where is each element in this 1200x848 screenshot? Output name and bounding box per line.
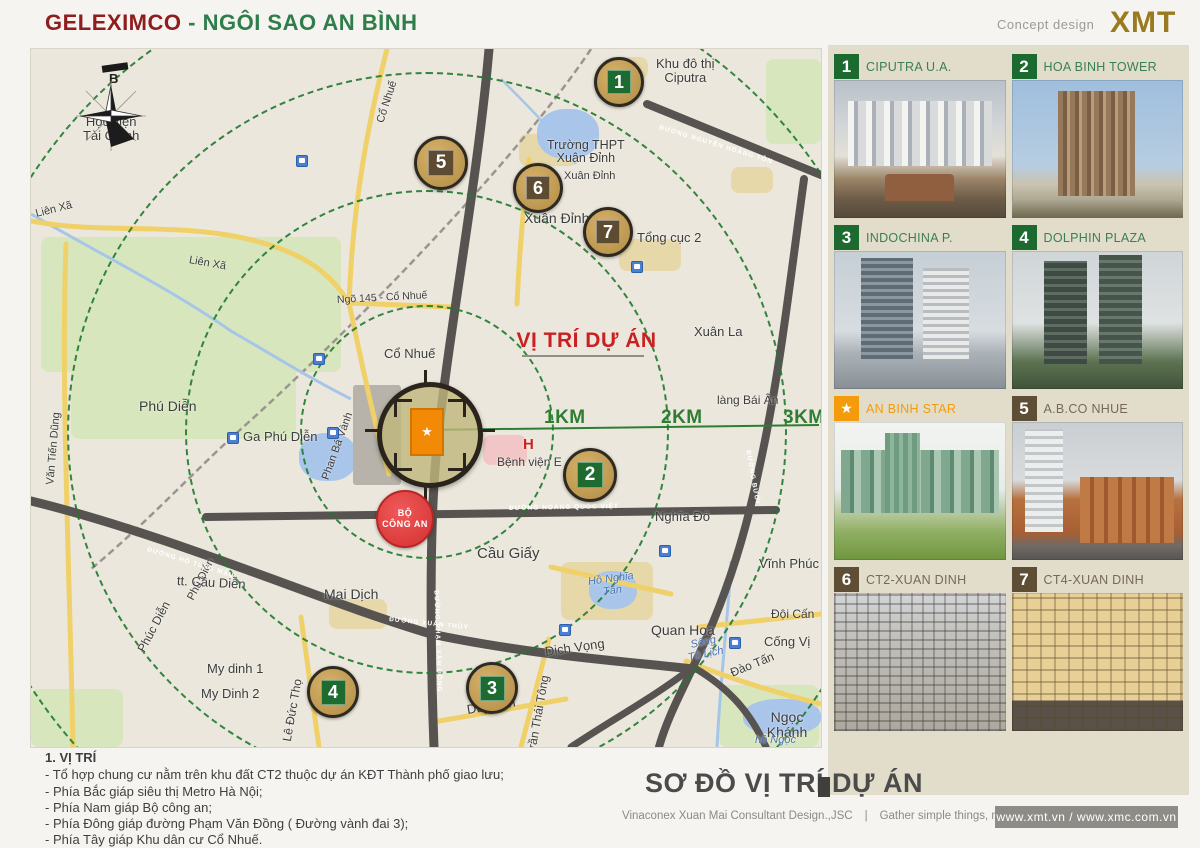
legend-number-box: 6 <box>834 567 859 592</box>
legend-label: CT4-XUAN DINH <box>1044 573 1144 587</box>
crosshair-tick <box>365 429 378 432</box>
location-map: B VỊ TRÍ DỰ ÁN <box>30 48 822 748</box>
legend-item-3: 3INDOCHINA P. <box>834 224 1006 392</box>
map-label: làng Bái Ân <box>717 394 778 407</box>
legend-label-row: 4DOLPHIN PLAZA <box>1012 224 1184 251</box>
legend-item-6: 6CT2-XUAN DINH <box>834 566 1006 734</box>
bus-stop-icon <box>631 261 643 273</box>
buildings-legend-panel: 1CIPUTRA U.A.2HOA BINH TOWER3INDOCHINA P… <box>828 45 1189 795</box>
location-note-line: - Phía Bắc giáp siêu thị Metro Hà Nội; <box>45 784 605 800</box>
legend-item-5: 5A.B.CO NHUE <box>1012 395 1184 563</box>
map-label: Xuân Đỉnh <box>524 211 589 226</box>
location-note-line: - Tổ hợp chung cư nằm trên khu đất CT2 t… <box>45 767 605 783</box>
legend-number-box: 3 <box>834 225 859 250</box>
police-ministry-marker: BỘ CÔNG AN <box>376 490 434 548</box>
map-label: Mai Dịch <box>324 587 378 602</box>
legend-label-row: 1CIPUTRA U.A. <box>834 53 1006 80</box>
concept-design-note: Concept design <box>997 17 1094 32</box>
marker-number: 2 <box>577 462 603 488</box>
legend-label-row: 2HOA BINH TOWER <box>1012 53 1184 80</box>
legend-label: AN BINH STAR <box>866 402 956 416</box>
legend-item-7: 7CT4-XUAN DINH <box>1012 566 1184 734</box>
building-photo-indochina <box>834 251 1006 389</box>
legend-label: A.B.CO NHUE <box>1044 402 1129 416</box>
title-separator: - <box>188 10 196 35</box>
bus-stop-icon <box>227 432 239 444</box>
map-label: Cổ Nhuế <box>384 347 435 361</box>
page-tab <box>818 777 830 797</box>
location-notes: 1. VỊ TRÍ - Tổ hợp chung cư nằm trên khu… <box>45 750 605 848</box>
bus-stop-icon <box>327 427 339 439</box>
map-marker-1: 1 <box>594 57 644 107</box>
bus-stop-icon <box>313 353 325 365</box>
building-photo-dolphin <box>1012 251 1184 389</box>
map-marker-2: 2 <box>563 448 617 502</box>
corner-bracket <box>448 453 466 471</box>
star-icon: ★ <box>834 396 859 421</box>
map-label: Cống Vị <box>764 635 810 649</box>
legend-number-box: 5 <box>1012 396 1037 421</box>
map-label: Bệnh viện E <box>497 456 562 469</box>
project-core-star-icon: ★ <box>410 408 444 456</box>
legend-number-box: 7 <box>1012 567 1037 592</box>
map-label: Vĩnh Phúc <box>759 557 819 571</box>
bus-stop-icon <box>559 624 571 636</box>
credit-separator: | <box>865 810 868 822</box>
corner-bracket <box>448 399 466 417</box>
map-label: Phú Diễn <box>139 399 197 414</box>
legend-label: HOA BINH TOWER <box>1044 60 1157 74</box>
map-marker-3: 3 <box>466 662 518 714</box>
location-note-line: - Phía Đông giáp đường Phạm Văn Đồng ( Đ… <box>45 816 605 832</box>
police-label-line2: CÔNG AN <box>382 519 428 530</box>
marker-number: 4 <box>321 680 346 705</box>
location-note-line: - Phía Nam giáp Bộ công an; <box>45 800 605 816</box>
marker-number: 5 <box>428 150 454 176</box>
map-label: Tổng cục 2 <box>637 231 701 245</box>
crosshair-tick <box>482 429 495 432</box>
map-label: Đội Cấn <box>771 608 814 621</box>
legend-item-1: 1CIPUTRA U.A. <box>834 53 1006 221</box>
legend-label-row: 3INDOCHINA P. <box>834 224 1006 251</box>
bus-stop-icon <box>729 637 741 649</box>
legend-label-row: 5A.B.CO NHUE <box>1012 395 1184 422</box>
building-photo-ct2 <box>834 593 1006 731</box>
brand-name: GELEXIMCO <box>45 10 182 35</box>
crosshair-tick <box>424 370 427 383</box>
legend-label: CT2-XUAN DINH <box>866 573 966 587</box>
building-photo-anbinh <box>834 422 1006 560</box>
map-marker-4: 4 <box>307 666 359 718</box>
map-label: Trường THPT Xuân Đỉnh <box>547 139 625 165</box>
map-label: Khu đô thị Ciputra <box>656 57 715 84</box>
project-site-marker: ★ <box>377 382 483 488</box>
map-marker-7: 7 <box>583 207 633 257</box>
distance-label: 1KM <box>544 407 586 429</box>
map-marker-6: 6 <box>513 163 563 213</box>
distance-label: 2KM <box>661 407 703 429</box>
map-label: Nghĩa Đô <box>655 510 710 524</box>
site-label-underline <box>522 355 644 357</box>
bus-stop-icon <box>296 155 308 167</box>
map-label: Ga Phú Diễn <box>243 430 317 444</box>
compass-star-icon <box>76 81 146 151</box>
diagram-title: SƠ ĐỒ VỊ TRÍ DỰ ÁN <box>645 768 923 799</box>
map-label: Xuân La <box>694 325 742 339</box>
project-name: NGÔI SAO AN BÌNH <box>203 10 418 35</box>
xmt-logo: XMT <box>1110 6 1176 40</box>
marker-number: 3 <box>480 676 505 701</box>
legend-label: DOLPHIN PLAZA <box>1044 231 1147 245</box>
legend-item-2: 2HOA BINH TOWER <box>1012 53 1184 221</box>
legend-number-box: 1 <box>834 54 859 79</box>
building-photo-ciputra <box>834 80 1006 218</box>
map-label: hồ Ngọc <box>755 735 796 747</box>
marker-number: 7 <box>596 220 620 244</box>
website-urls: www.xmt.vn / www.xmc.com.vn <box>995 806 1178 828</box>
legend-item-★: ★AN BINH STAR <box>834 395 1006 563</box>
legend-label: CIPUTRA U.A. <box>866 60 952 74</box>
project-site-label: VỊ TRÍ DỰ ÁN <box>514 329 659 353</box>
map-label: My Dinh 2 <box>201 687 260 701</box>
marker-number: 1 <box>607 70 631 94</box>
legend-label: INDOCHINA P. <box>866 231 953 245</box>
poster-page: GELEXIMCO - NGÔI SAO AN BÌNH Concept des… <box>0 0 1200 848</box>
map-label: Cầu Giấy <box>477 546 540 562</box>
bus-stop-icon <box>659 545 671 557</box>
building-photo-hoabinh <box>1012 80 1184 218</box>
police-label-line1: BỘ <box>398 508 413 519</box>
building-photo-abco <box>1012 422 1184 560</box>
marker-number: 6 <box>526 176 550 200</box>
legend-label-row: 6CT2-XUAN DINH <box>834 566 1006 593</box>
legend-label-row: 7CT4-XUAN DINH <box>1012 566 1184 593</box>
building-photo-ct4 <box>1012 593 1184 731</box>
map-label: H <box>523 437 534 453</box>
legend-number-box: 4 <box>1012 225 1037 250</box>
compass-rose: B <box>76 59 146 151</box>
legend-item-4: 4DOLPHIN PLAZA <box>1012 224 1184 392</box>
map-label: My dinh 1 <box>207 662 263 676</box>
legend-label-row: ★AN BINH STAR <box>834 395 1006 422</box>
distance-label: 3KM <box>783 407 822 429</box>
map-marker-5: 5 <box>414 136 468 190</box>
location-note-line: - Phía Tây giáp Khu dân cư Cổ Nhuế. <box>45 832 605 848</box>
map-label: Xuân Đỉnh <box>564 171 615 183</box>
notes-title: 1. VỊ TRÍ <box>45 750 605 766</box>
page-title: GELEXIMCO - NGÔI SAO AN BÌNH <box>45 10 418 36</box>
company-credit: Vinaconex Xuan Mai Consultant Design.,JS… <box>622 810 853 822</box>
legend-number-box: 2 <box>1012 54 1037 79</box>
